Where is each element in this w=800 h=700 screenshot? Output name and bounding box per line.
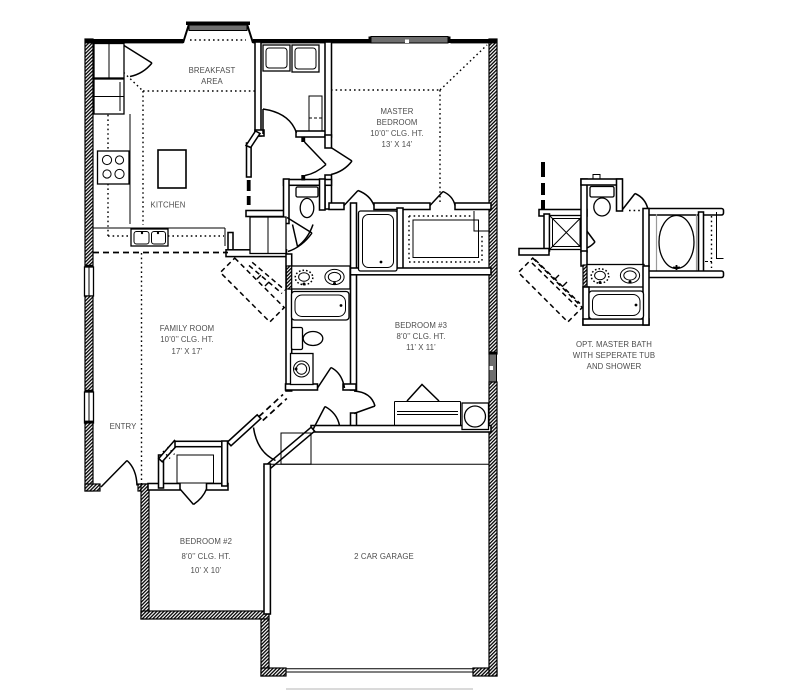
svg-text:ENTRY: ENTRY [110,422,137,431]
svg-text:BEDROOM #2: BEDROOM #2 [180,537,232,546]
svg-text:10’0’’ CLG. HT.: 10’0’’ CLG. HT. [370,129,424,138]
svg-text:17’ X 17’: 17’ X 17’ [172,347,203,356]
svg-text:WITH SEPERATE TUB: WITH SEPERATE TUB [573,351,655,360]
svg-text:8’0’’ CLG. HT.: 8’0’’ CLG. HT. [396,332,445,341]
svg-text:MASTER: MASTER [380,107,413,116]
svg-text:AND SHOWER: AND SHOWER [587,362,642,371]
svg-text:KITCHEN: KITCHEN [151,201,186,210]
svg-text:BREAKFAST: BREAKFAST [189,66,236,75]
svg-text:8’0’’ CLG. HT.: 8’0’’ CLG. HT. [181,552,230,561]
svg-text:10’0’’ CLG. HT.: 10’0’’ CLG. HT. [160,335,214,344]
svg-text:10’ X 10’: 10’ X 10’ [191,566,222,575]
svg-text:13’ X 14’: 13’ X 14’ [382,140,413,149]
svg-text:AREA: AREA [201,77,223,86]
svg-text:BEDROOM #3: BEDROOM #3 [395,321,447,330]
svg-text:2 CAR GARAGE: 2 CAR GARAGE [354,552,414,561]
svg-text:OPT. MASTER BATH: OPT. MASTER BATH [576,340,652,349]
svg-text:11’ X 11’: 11’ X 11’ [406,343,436,352]
svg-text:FAMILY ROOM: FAMILY ROOM [160,324,215,333]
svg-text:BEDROOM: BEDROOM [377,118,418,127]
